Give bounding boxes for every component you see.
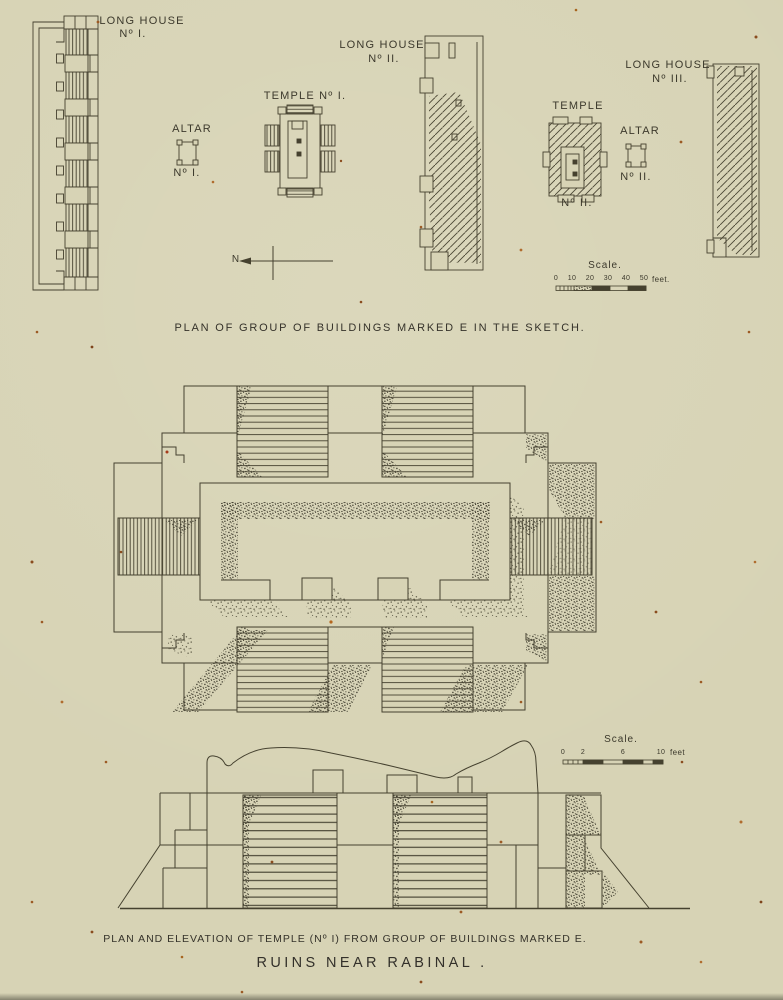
long-house-1-number: Nº I. (119, 28, 146, 40)
north-arrow (239, 246, 333, 280)
long-house-2-number: Nº II. (368, 53, 399, 65)
elevation-scale-tick: 10 (657, 749, 666, 756)
altar-1-number: Nº I. (173, 167, 200, 179)
plan-scale-unit: feet. (652, 275, 670, 284)
elevation-scale-tick: 6 (621, 749, 625, 756)
elevation-scale-tick: 0 (561, 749, 565, 756)
long-house-3-label: LONG HOUSE (625, 59, 710, 71)
page-title: RUINS NEAR RABINAL . (256, 955, 487, 971)
plan-scale-bar (556, 286, 646, 291)
temple-1-elevation (118, 741, 690, 909)
long-house-1-plan (33, 16, 98, 290)
plan-scale-tick: 20 (586, 275, 595, 282)
plan-caption: PLAN OF GROUP OF BUILDINGS MARKED E IN T… (174, 322, 585, 334)
temple-1-label: TEMPLE Nº I. (264, 90, 347, 102)
long-house-1-label: LONG HOUSE (99, 15, 184, 27)
plate: LONG HOUSE Nº I. ALTAR Nº I. TEMPLE Nº I… (0, 0, 783, 1000)
elevation-scale-bar (563, 760, 663, 764)
north-label: N (232, 254, 240, 265)
long-house-2-label: LONG HOUSE (339, 39, 424, 51)
elevation-scale-unit: feet (670, 748, 685, 757)
long-house-3-number: Nº III. (652, 73, 688, 85)
plan-scale-tick: 40 (622, 275, 631, 282)
plan-scale-title: Scale. (588, 260, 622, 271)
altar-2-plan (626, 144, 646, 167)
temple-2-number: Nº II. (561, 197, 592, 209)
temple-2-plan (543, 117, 607, 202)
elevation-scale-title: Scale. (604, 734, 638, 745)
plan-scale-tick: 0 (554, 275, 558, 282)
plan-scale-tick: 30 (604, 275, 613, 282)
plan-scale-tick: 10 (568, 275, 577, 282)
long-house-2-plan (420, 36, 483, 270)
elevation-caption: PLAN AND ELEVATION OF TEMPLE (Nº I) FROM… (103, 933, 586, 945)
altar-2-number: Nº II. (620, 171, 651, 183)
plate-svg (0, 0, 783, 1000)
long-house-3-plan (707, 64, 759, 257)
altar-2-label: ALTAR (620, 125, 660, 137)
temple-1-large-plan (114, 386, 596, 712)
altar-1-plan (177, 140, 198, 165)
altar-1-label: ALTAR (172, 123, 212, 135)
plan-scale-tick: 50 (640, 275, 649, 282)
temple-1-plan (265, 105, 335, 197)
temple-2-label: TEMPLE (552, 100, 603, 112)
elevation-scale-tick: 2 (581, 749, 585, 756)
